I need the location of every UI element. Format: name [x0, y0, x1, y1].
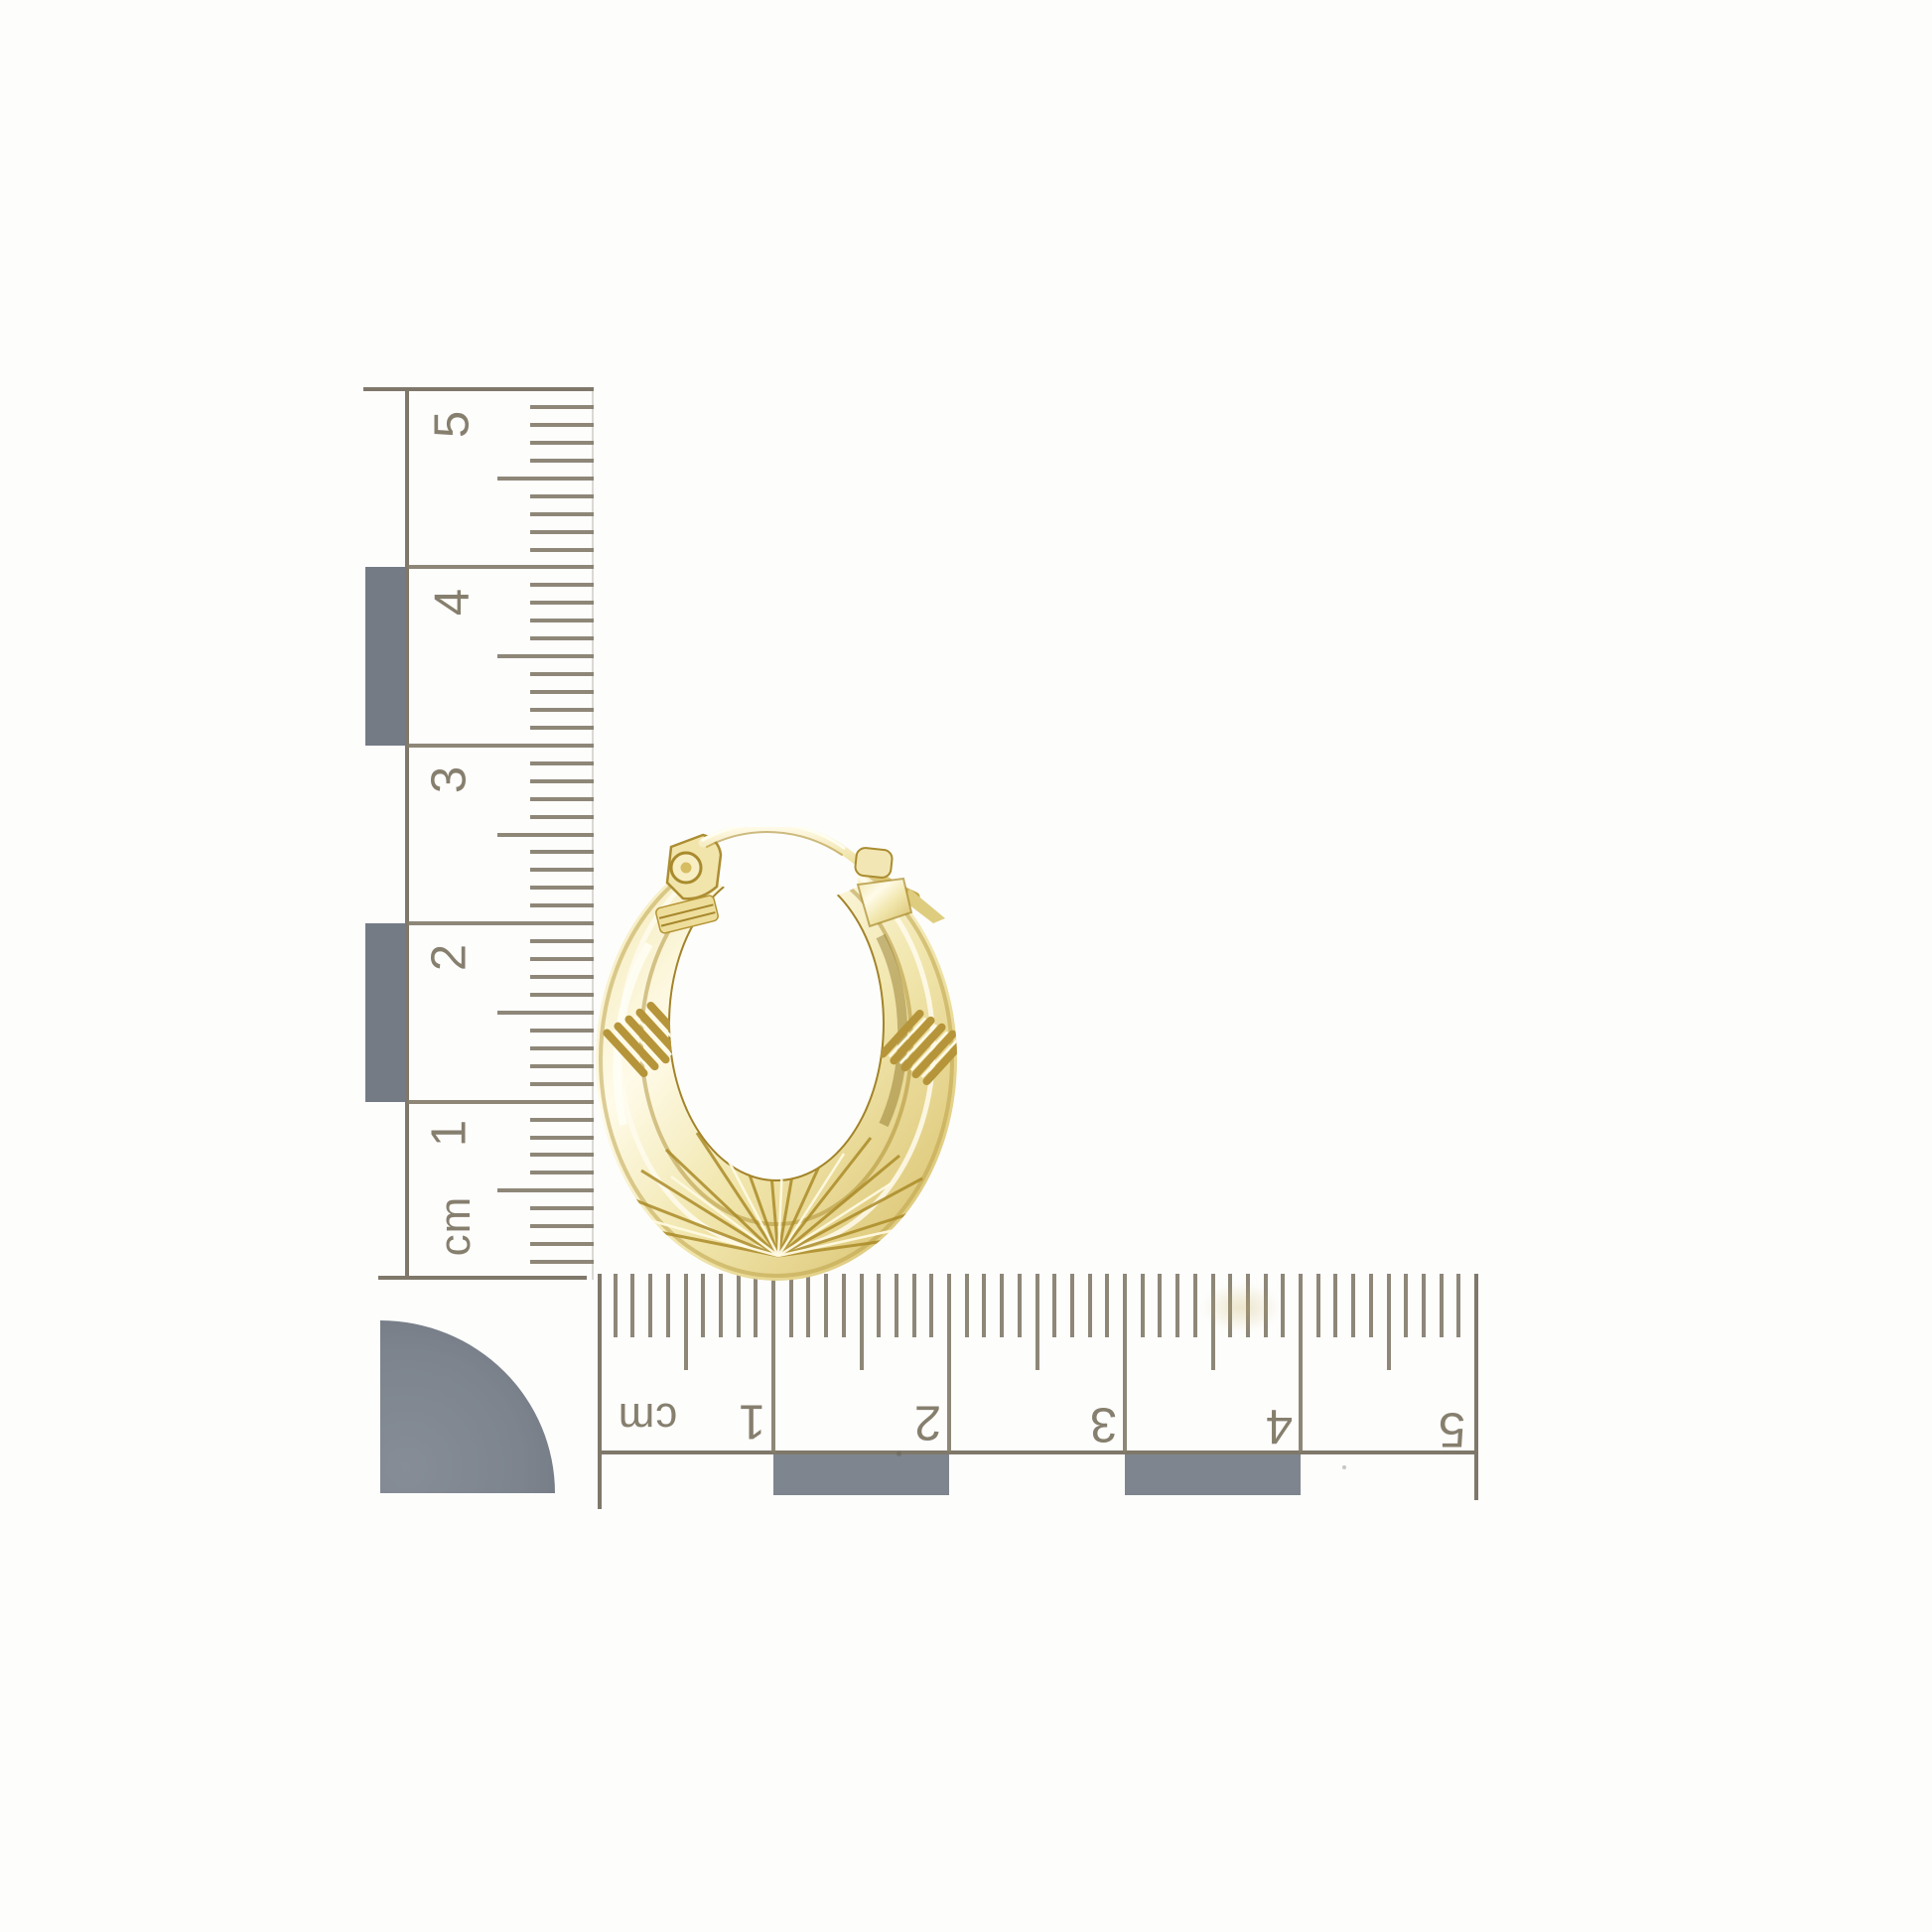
vertical-ruler-bottom-edge — [378, 1276, 587, 1280]
vertical-ruler-label-4: 4 — [429, 588, 478, 616]
mm-tick — [1105, 1274, 1109, 1337]
mm-tick — [530, 405, 594, 409]
mm-tick — [1175, 1274, 1179, 1337]
earring-top-gap — [713, 827, 858, 904]
mm-tick — [530, 672, 594, 676]
mm-tick — [1369, 1274, 1373, 1337]
mm-tick — [1422, 1274, 1426, 1337]
half-cm-tick — [497, 654, 594, 658]
scale-block — [598, 1452, 773, 1495]
mm-tick — [1018, 1274, 1022, 1337]
mm-tick — [1088, 1274, 1092, 1337]
mm-tick — [530, 708, 594, 712]
earring-catch-tab — [855, 847, 894, 879]
cm-tick — [1123, 1274, 1127, 1452]
mm-tick — [530, 903, 594, 907]
mm-tick — [530, 939, 594, 943]
horizontal-ruler-label-5: 5 — [1438, 1405, 1465, 1453]
mm-tick — [1333, 1274, 1337, 1337]
vertical-ruler-unit-label: cm — [434, 1196, 478, 1257]
mm-tick — [530, 1224, 594, 1228]
mm-tick — [530, 548, 594, 552]
dust-smudge — [1201, 1283, 1281, 1332]
mm-tick — [530, 761, 594, 765]
mm-tick — [530, 797, 594, 801]
cm-tick — [407, 744, 594, 748]
mm-tick — [530, 993, 594, 997]
mm-tick — [530, 636, 594, 640]
mm-tick — [530, 1206, 594, 1210]
dust-speck — [1342, 1465, 1346, 1469]
mm-tick — [530, 815, 594, 819]
cm-tick — [771, 1274, 775, 1452]
horizontal-ruler-label-3: 3 — [1089, 1400, 1117, 1449]
vertical-ruler-label-1: 1 — [426, 1119, 475, 1147]
earring — [588, 827, 971, 1292]
mm-tick — [530, 1064, 594, 1068]
horizontal-ruler-right-edge — [1474, 1274, 1478, 1500]
scale-block — [949, 1452, 1125, 1495]
earring-hinge — [655, 835, 721, 934]
scale-block — [365, 923, 407, 1101]
cm-tick — [407, 921, 594, 925]
mm-tick — [530, 975, 594, 979]
vertical-ruler-baseline — [405, 389, 409, 1280]
mm-tick — [530, 1082, 594, 1086]
mm-tick — [530, 779, 594, 783]
vertical-ruler-top-edge — [363, 387, 594, 391]
horizontal-ruler-unit-label: cm — [618, 1396, 678, 1440]
mm-tick — [1440, 1274, 1444, 1337]
horizontal-ruler-baseline — [598, 1450, 1478, 1454]
half-cm-tick — [497, 477, 594, 481]
scale-block — [1125, 1452, 1301, 1495]
cm-tick — [407, 565, 594, 569]
scale-block — [1301, 1452, 1476, 1495]
horizontal-ruler-label-4: 4 — [1265, 1402, 1293, 1450]
mm-tick — [1456, 1274, 1460, 1337]
half-cm-tick — [497, 1011, 594, 1015]
mm-tick — [530, 1242, 594, 1246]
mm-tick — [530, 1260, 594, 1264]
mm-tick — [1316, 1274, 1320, 1337]
mm-tick — [530, 850, 594, 854]
mm-tick — [530, 1118, 594, 1122]
scale-block — [365, 567, 407, 745]
scale-block — [365, 389, 407, 567]
horizontal-ruler-left-edge — [598, 1274, 602, 1509]
mm-tick — [1193, 1274, 1197, 1337]
vertical-ruler-label-2: 2 — [426, 943, 475, 971]
mm-tick — [530, 512, 594, 516]
scale-block — [365, 1102, 407, 1280]
dust-speck — [897, 1451, 901, 1456]
mm-tick — [530, 601, 594, 605]
mm-tick — [530, 1171, 594, 1174]
mm-tick — [530, 886, 594, 890]
vertical-ruler-label-3: 3 — [426, 765, 475, 793]
mm-tick — [1070, 1274, 1074, 1337]
mm-tick — [1000, 1274, 1004, 1337]
horizontal-ruler-label-2: 2 — [913, 1398, 941, 1447]
vertical-ruler-label-5: 5 — [429, 410, 478, 438]
mm-tick — [982, 1274, 986, 1337]
mm-tick — [1281, 1274, 1285, 1337]
mm-tick — [1052, 1274, 1056, 1337]
mm-tick — [1351, 1274, 1355, 1337]
mm-tick — [530, 583, 594, 587]
mm-tick — [530, 726, 594, 730]
mm-tick — [530, 1153, 594, 1157]
mm-tick — [530, 459, 594, 463]
half-cm-tick — [497, 833, 594, 837]
half-cm-tick — [1035, 1274, 1039, 1370]
cm-tick — [1299, 1274, 1303, 1452]
earring-hinge-pin — [681, 863, 692, 874]
half-cm-tick — [497, 1188, 594, 1192]
half-cm-tick — [1387, 1274, 1391, 1370]
mm-tick — [530, 957, 594, 961]
scale-block — [365, 746, 407, 923]
mm-tick — [530, 530, 594, 534]
mm-tick — [1404, 1274, 1408, 1337]
mm-tick — [530, 619, 594, 622]
mm-tick — [530, 441, 594, 445]
mm-tick — [530, 1136, 594, 1140]
corner-quarter-circle-marker — [380, 1320, 555, 1493]
horizontal-ruler-label-1: 1 — [738, 1397, 765, 1446]
mm-tick — [530, 1046, 594, 1050]
mm-tick — [530, 690, 594, 694]
mm-tick — [1141, 1274, 1145, 1337]
scale-block — [773, 1452, 949, 1495]
cm-tick — [947, 1274, 951, 1452]
mm-tick — [530, 868, 594, 872]
mm-tick — [530, 1029, 594, 1033]
mm-tick — [530, 494, 594, 498]
cm-tick — [407, 1100, 594, 1104]
mm-tick — [530, 423, 594, 427]
mm-tick — [1158, 1274, 1162, 1337]
photo-canvas: 5 4 3 2 1 cm cm 1 2 3 4 5 — [0, 0, 1932, 1932]
